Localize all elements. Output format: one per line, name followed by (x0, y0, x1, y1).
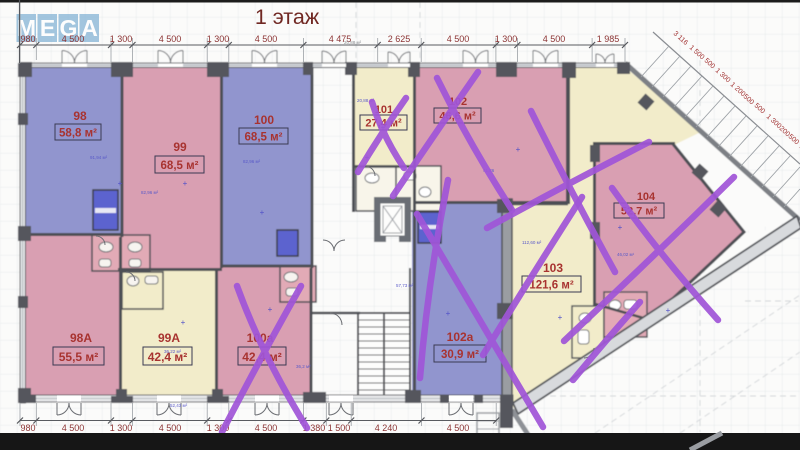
svg-text:2 625: 2 625 (388, 34, 411, 44)
svg-text:+: + (118, 179, 123, 188)
svg-text:4 500: 4 500 (62, 34, 85, 44)
svg-text:82,96 м²: 82,96 м² (141, 190, 159, 195)
svg-text:52,43 м²: 52,43 м² (170, 403, 188, 408)
svg-text:20,88 м²: 20,88 м² (344, 40, 362, 45)
svg-text:4 500: 4 500 (543, 34, 566, 44)
svg-text:4 240: 4 240 (375, 423, 398, 433)
svg-text:1 этаж: 1 этаж (255, 5, 320, 29)
svg-text:+: + (183, 179, 188, 188)
svg-text:+: + (558, 313, 563, 322)
svg-text:98А: 98А (70, 331, 92, 345)
svg-text:4 500: 4 500 (447, 423, 470, 433)
svg-text:46,02 м¹: 46,02 м¹ (617, 252, 635, 257)
svg-text:30,9 м²: 30,9 м² (441, 349, 479, 361)
svg-text:58,8 м²: 58,8 м² (59, 128, 97, 140)
svg-text:1 300: 1 300 (110, 423, 133, 433)
svg-text:68,5 м²: 68,5 м² (245, 132, 283, 144)
svg-text:103: 103 (543, 261, 563, 275)
svg-text:1 300: 1 300 (495, 34, 518, 44)
svg-text:4 500: 4 500 (255, 423, 278, 433)
svg-text:36,22 м²: 36,22 м² (164, 349, 182, 354)
svg-text:4 500: 4 500 (62, 423, 85, 433)
svg-text:1 500: 1 500 (328, 423, 351, 433)
svg-text:4 500: 4 500 (159, 423, 182, 433)
svg-text:57,73 м²: 57,73 м² (396, 283, 414, 288)
svg-text:102а: 102а (447, 330, 474, 344)
svg-text:1 985: 1 985 (597, 34, 620, 44)
svg-text:99: 99 (173, 140, 187, 154)
svg-text:+: + (260, 208, 265, 217)
svg-text:E: E (40, 15, 55, 41)
svg-text:82,96 м²: 82,96 м² (243, 159, 261, 164)
svg-text:+: + (446, 309, 451, 318)
svg-text:+: + (516, 145, 521, 154)
svg-text:+: + (268, 305, 273, 314)
svg-text:55,5 м²: 55,5 м² (59, 350, 99, 364)
svg-text:980: 980 (20, 423, 35, 433)
svg-text:980: 980 (20, 34, 35, 44)
svg-text:1 300: 1 300 (110, 34, 133, 44)
svg-text:4 500: 4 500 (255, 34, 278, 44)
svg-text:68,5 м²: 68,5 м² (161, 160, 199, 172)
svg-text:99А: 99А (158, 331, 180, 345)
svg-text:91,94 м²: 91,94 м² (90, 155, 108, 160)
svg-text:1 300: 1 300 (207, 34, 230, 44)
svg-text:98: 98 (73, 109, 87, 123)
svg-text:+: + (181, 318, 186, 327)
svg-text:121,6 м²: 121,6 м² (529, 280, 573, 292)
svg-text:4 500: 4 500 (447, 34, 470, 44)
svg-text:4 500: 4 500 (159, 34, 182, 44)
svg-text:+: + (666, 306, 671, 315)
svg-text:112,60 м²: 112,60 м² (522, 240, 542, 245)
svg-text:100: 100 (254, 113, 274, 127)
svg-text:104: 104 (637, 191, 656, 203)
svg-text:+: + (618, 223, 623, 232)
svg-text:36,2 м²: 36,2 м² (296, 364, 311, 369)
